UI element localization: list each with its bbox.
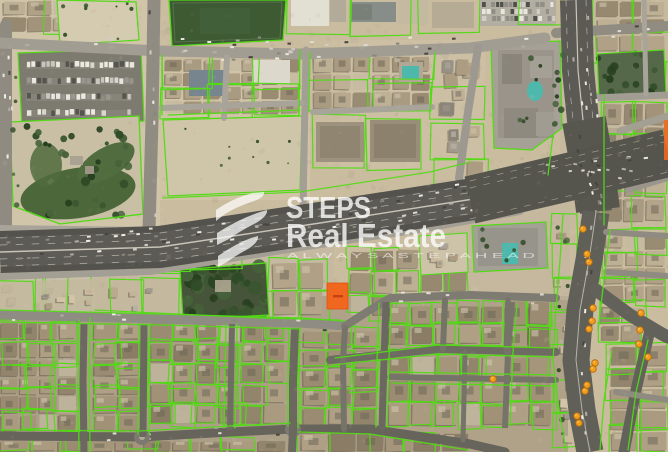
svg-text:Real Estate: Real Estate bbox=[286, 217, 446, 254]
svg-text:A L W A Y S A S T E P A: A L W A Y S A S T E P A H E A D bbox=[287, 251, 536, 260]
